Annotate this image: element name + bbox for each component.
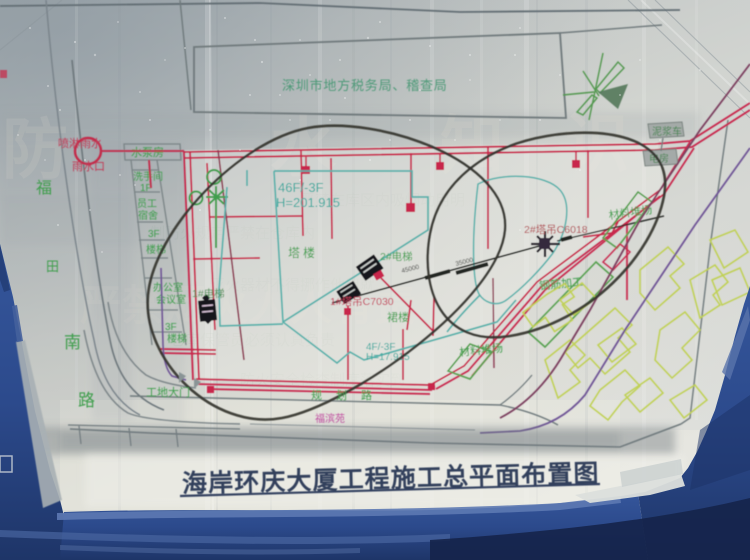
svg-text:田: 田: [46, 259, 59, 274]
svg-text:泥浆车: 泥浆车: [652, 125, 682, 138]
svg-text:雨水口: 雨水口: [72, 160, 105, 173]
svg-text:洗手间: 洗手间: [133, 170, 163, 183]
svg-text:喷淋雨水: 喷淋雨水: [58, 137, 102, 150]
svg-text:2#塔吊C6018: 2#塔吊C6018: [524, 223, 588, 236]
svg-text:46F/-3F: 46F/-3F: [278, 180, 324, 195]
svg-text:H=17.915: H=17.915: [366, 352, 410, 363]
svg-text:规划路: 规划路: [311, 388, 386, 402]
svg-text:1#电梯: 1#电梯: [192, 287, 225, 300]
svg-text:南: 南: [64, 333, 81, 352]
svg-text:福滨苑: 福滨苑: [315, 412, 345, 425]
svg-text:2#电梯: 2#电梯: [380, 250, 413, 263]
svg-text:塔楼: 塔楼: [288, 245, 318, 260]
svg-text:H=201.915: H=201.915: [276, 195, 340, 210]
svg-text:深圳市地方税务局、稽查局: 深圳市地方税务局、稽查局: [282, 78, 448, 93]
svg-text:福: 福: [36, 179, 52, 197]
svg-text:3F: 3F: [148, 229, 160, 240]
svg-text:办公室: 办公室: [153, 281, 183, 294]
svg-text:工地大门: 工地大门: [146, 385, 190, 399]
svg-text:裙楼: 裙楼: [387, 310, 409, 324]
svg-text:水泵房: 水泵房: [131, 146, 164, 159]
svg-text:宿舍: 宿舍: [138, 209, 158, 222]
svg-text:3F: 3F: [165, 322, 177, 333]
svg-text:员工: 员工: [137, 198, 157, 210]
svg-text:1#塔吊C7030: 1#塔吊C7030: [330, 295, 394, 308]
svg-text:路: 路: [78, 391, 95, 410]
svg-text:楼梯: 楼梯: [167, 332, 187, 345]
svg-text:会议室: 会议室: [156, 293, 186, 306]
